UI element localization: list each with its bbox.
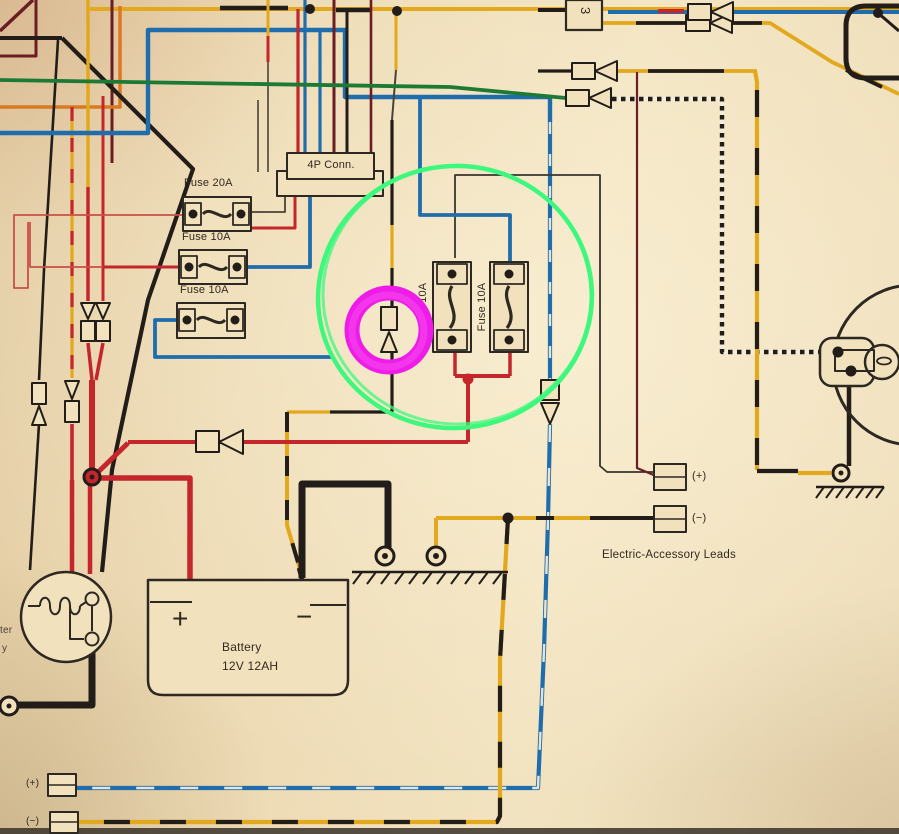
fuse-10a-box-row3	[177, 303, 245, 338]
headlight	[820, 285, 899, 445]
bottom-minus-terminal	[50, 812, 78, 833]
battery-spec-label: 12V 12AH	[222, 660, 278, 673]
connector-block-3-label: 3	[576, 7, 592, 23]
connector-4p-label: 4P Conn.	[292, 159, 370, 171]
diagram-layer	[0, 0, 899, 834]
fuse-20a-label: Fuse 20A	[184, 177, 233, 189]
fuse-10a-vertical-left-label: Fuse 10A	[417, 279, 431, 335]
bottom-plus-label: (+)	[26, 778, 39, 789]
battery-name-label: Battery	[222, 641, 261, 654]
accessory-plus-terminal	[654, 464, 686, 490]
ground-ring-terminals	[376, 547, 445, 565]
edge-text-2: y	[2, 643, 7, 654]
fuse-10a-vertical-right-box	[490, 262, 528, 352]
accessory-leads-caption: Electric-Accessory Leads	[602, 549, 736, 562]
headlight-ground-wires	[816, 378, 884, 498]
fuse-20a-box	[183, 197, 251, 231]
fuse-10a-box-row2	[179, 250, 247, 284]
battery-box	[148, 580, 348, 695]
accessory-minus-terminal	[654, 506, 686, 532]
accessory-minus-label: (−)	[692, 512, 706, 524]
battery-minus-sign: −	[296, 602, 313, 633]
fuse-10a-row3-label: Fuse 10A	[180, 284, 229, 296]
battery-ground-wires	[302, 484, 508, 584]
headlight-ground-ring	[833, 465, 849, 481]
fuse-10a-row2-label: Fuse 10A	[182, 231, 231, 243]
accessory-plus-label: (+)	[692, 470, 706, 482]
checkered-wire-headlight	[612, 99, 831, 352]
red-junction-ring	[84, 469, 100, 485]
relay-ring-terminal	[0, 697, 18, 715]
fuse-10a-vertical-left-box	[433, 262, 471, 352]
wiring-diagram-photo: 4P Conn. Fuse 20A Fuse 10A Fuse 10A Fuse…	[0, 0, 899, 834]
bottom-plus-terminal	[48, 774, 76, 796]
bottom-minus-label: (−)	[26, 816, 39, 827]
edge-text-1: ter	[0, 625, 12, 636]
fuse-10a-vertical-right-label: Fuse 10A	[476, 279, 490, 335]
battery-plus-sign: +	[172, 604, 189, 635]
starter-relay	[21, 572, 111, 662]
